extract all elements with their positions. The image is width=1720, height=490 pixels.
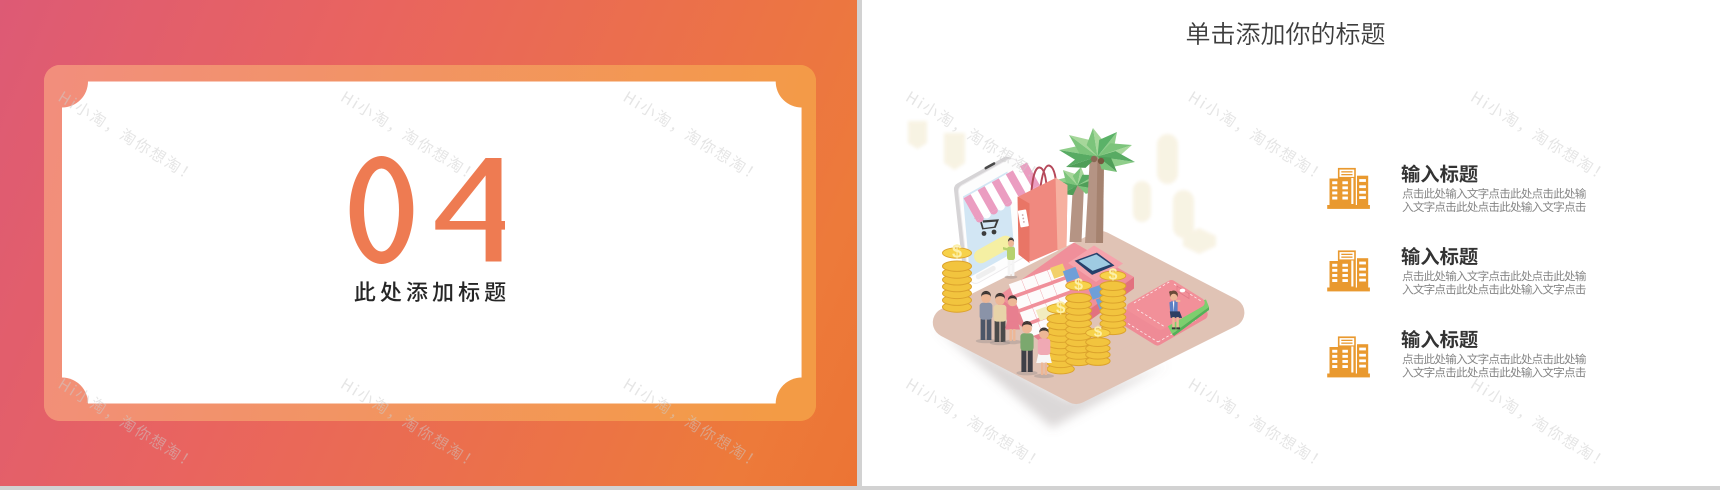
svg-text:$: $ (1074, 277, 1083, 294)
svg-text:$: $ (1094, 324, 1103, 341)
svg-text:$: $ (1108, 267, 1117, 284)
svg-text:$: $ (1056, 298, 1066, 317)
svg-text:$: $ (952, 241, 962, 261)
